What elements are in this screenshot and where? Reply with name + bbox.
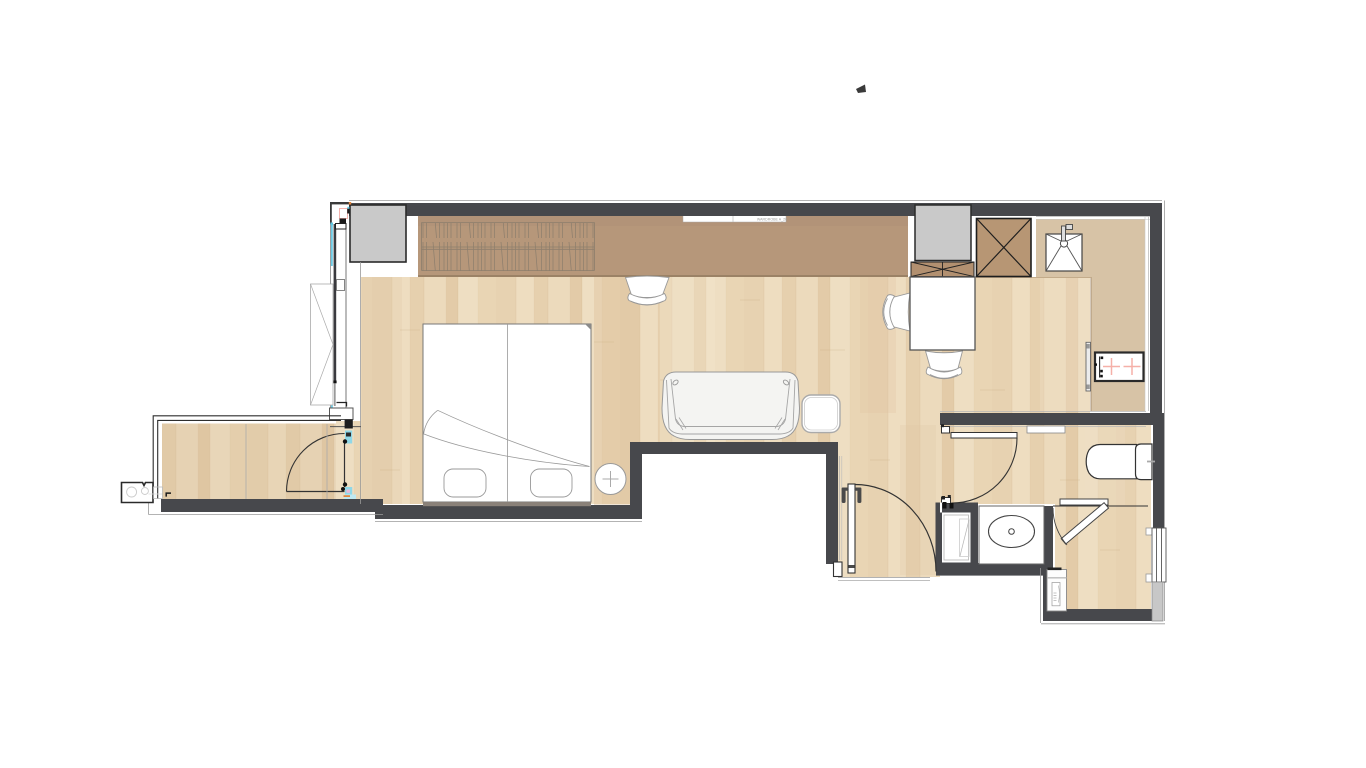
svg-text:WARDROBE A_20: WARDROBE A_20 xyxy=(757,218,787,222)
